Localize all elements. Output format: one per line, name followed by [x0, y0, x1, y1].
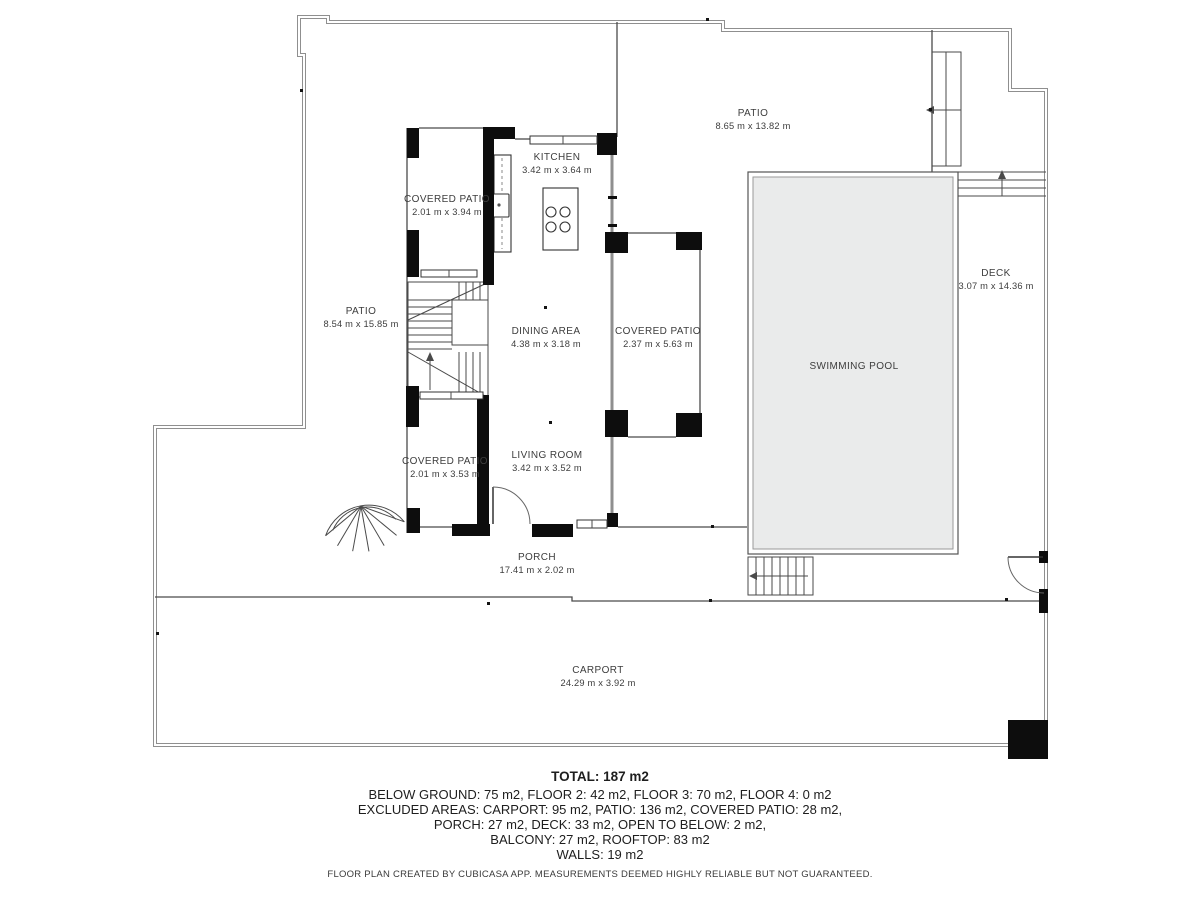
floor-plan-drawing: PATIO 8.65 m x 13.82 m PATIO 8.54 m x 15… [0, 0, 1200, 900]
living-room-door [493, 487, 530, 524]
disclaimer-footer: FLOOR PLAN CREATED BY CUBICASA APP. MEAS… [0, 869, 1200, 880]
covered-patio-window [421, 270, 477, 277]
pool-stairs [748, 557, 813, 595]
summary-line-porch-deck: PORCH: 27 m2, DECK: 33 m2, OPEN TO BELOW… [0, 818, 1200, 832]
room-label-kitchen: KITCHEN [534, 152, 581, 163]
stair-window [420, 392, 483, 399]
fan-stair [322, 499, 409, 558]
room-label-patio-left: PATIO [346, 306, 377, 317]
room-dims-deck: 3.07 m x 14.36 m [958, 281, 1033, 291]
room-label-swimming-pool: SWIMMING POOL [809, 361, 898, 372]
living-room-window [577, 520, 607, 528]
room-dims-covered-patio-bottom: 2.01 m x 3.53 m [410, 469, 480, 479]
room-dims-covered-patio-top: 2.01 m x 3.94 m [412, 207, 482, 217]
room-label-covered-patio-bottom: COVERED PATIO [402, 456, 488, 467]
summary-line-floors: BELOW GROUND: 75 m2, FLOOR 2: 42 m2, FLO… [0, 788, 1200, 802]
room-label-covered-patio-top: COVERED PATIO [404, 194, 490, 205]
room-label-carport: CARPORT [572, 665, 624, 676]
kitchen-window [530, 136, 597, 144]
room-label-covered-patio-right: COVERED PATIO [615, 326, 701, 337]
room-label-deck: DECK [981, 268, 1010, 279]
room-dims-dining-area: 4.38 m x 3.18 m [511, 339, 581, 349]
deck-stairs [958, 170, 1046, 196]
room-dims-covered-patio-right: 2.37 m x 5.63 m [623, 339, 693, 349]
area-summary: TOTAL: 187 m2 BELOW GROUND: 75 m2, FLOOR… [0, 769, 1200, 863]
room-label-patio-top: PATIO [738, 108, 769, 119]
room-dims-porch: 17.41 m x 2.02 m [499, 565, 574, 575]
total-area: TOTAL: 187 m2 [0, 769, 1200, 784]
room-label-dining-area: DINING AREA [512, 326, 581, 337]
kitchen-island [543, 188, 578, 250]
room-label-porch: PORCH [518, 552, 556, 563]
room-dims-patio-top: 8.65 m x 13.82 m [715, 121, 790, 131]
summary-line-walls: WALLS: 19 m2 [0, 848, 1200, 862]
main-staircase [408, 282, 488, 397]
room-label-living-room: LIVING ROOM [511, 450, 582, 461]
room-dims-patio-left: 8.54 m x 15.85 m [323, 319, 398, 329]
room-dims-carport: 24.29 m x 3.92 m [560, 678, 635, 688]
room-dims-living-room: 3.42 m x 3.52 m [512, 463, 582, 473]
floor-plan-page: PATIO 8.65 m x 13.82 m PATIO 8.54 m x 15… [0, 0, 1200, 900]
summary-line-balcony-rooftop: BALCONY: 27 m2, ROOFTOP: 83 m2 [0, 833, 1200, 847]
room-dims-kitchen: 3.42 m x 3.64 m [522, 165, 592, 175]
summary-line-excluded: EXCLUDED AREAS: CARPORT: 95 m2, PATIO: 1… [0, 803, 1200, 817]
porch-side-door [1008, 557, 1044, 593]
